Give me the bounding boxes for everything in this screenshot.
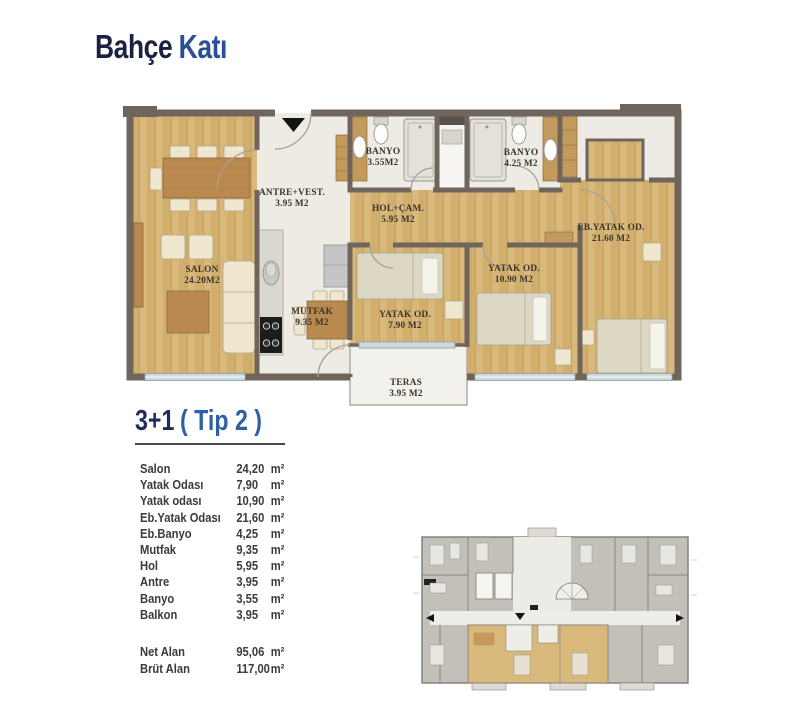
table-row: Yatak Odası7,90m² [140, 477, 290, 493]
svg-text:YATAK OD.: YATAK OD. [488, 264, 540, 274]
row-value: 9,35 [236, 542, 270, 558]
table-row: Mutfak9,35m² [140, 542, 290, 558]
row-unit: m² [271, 477, 290, 493]
table-row: Antre3,95m² [140, 574, 290, 590]
floor-plan-svg: SALON 24.20M2 ANTRE+VEST. 3.95 M2 BANYO … [115, 95, 690, 410]
row-label: Yatak Odası [140, 477, 236, 493]
row-value: 3,95 [236, 607, 270, 623]
svg-text:5.95 M2: 5.95 M2 [381, 215, 415, 225]
table-row: Eb.Yatak Odası21,60m² [140, 510, 290, 526]
unit-type-heading: 3+1( Tip 2 ) [135, 405, 262, 438]
unit-type-variant: ( Tip 2 ) [180, 405, 262, 437]
svg-text:ANTRE+VEST.: ANTRE+VEST. [259, 188, 325, 198]
svg-text:7.90 M2: 7.90 M2 [388, 321, 422, 331]
row-unit: m² [271, 591, 290, 607]
svg-text:21.60 M2: 21.60 M2 [592, 234, 630, 244]
row-label: Salon [140, 461, 236, 477]
svg-text:EB.YATAK OD.: EB.YATAK OD. [577, 223, 644, 233]
row-unit: m² [271, 607, 290, 623]
room-label-mutfak: MUTFAK 9.35 M2 [291, 307, 333, 328]
row-unit: m² [271, 558, 290, 574]
total-value: 117,00 [236, 661, 270, 678]
svg-text:BANYO: BANYO [504, 148, 539, 158]
row-value: 21,60 [236, 510, 270, 526]
total-unit: m² [271, 644, 290, 661]
room-label-bedroom-2: YATAK OD. 10.90 M2 [488, 264, 540, 285]
page-title-secondary: Katı [179, 28, 227, 65]
svg-text:24.20M2: 24.20M2 [184, 276, 220, 286]
row-unit: m² [271, 461, 290, 477]
unit-type-label: 3+1 [135, 405, 174, 437]
svg-text:3.55M2: 3.55M2 [368, 158, 399, 168]
svg-text:BANYO: BANYO [366, 147, 401, 157]
row-value: 3,95 [236, 574, 270, 590]
table-row: Yatak odası10,90m² [140, 493, 290, 509]
row-unit: m² [271, 526, 290, 542]
total-row: Brüt Alan117,00m² [140, 661, 290, 678]
totals-table: Net Alan95,06m² Brüt Alan117,00m² [140, 644, 290, 678]
row-value: 7,90 [236, 477, 270, 493]
highlighted-unit [468, 625, 608, 683]
svg-text:3.95 M2: 3.95 M2 [389, 389, 423, 399]
row-unit: m² [271, 510, 290, 526]
svg-text:YATAK OD.: YATAK OD. [379, 310, 431, 320]
row-label: Yatak odası [140, 493, 236, 509]
row-label: Mutfak [140, 542, 236, 558]
row-unit: m² [271, 542, 290, 558]
row-unit: m² [271, 574, 290, 590]
row-label: Balkon [140, 607, 236, 623]
total-label: Brüt Alan [140, 661, 236, 678]
total-value: 95,06 [236, 644, 270, 661]
row-label: Antre [140, 574, 236, 590]
room-label-teras: TERAS 3.95 M2 [389, 378, 423, 399]
table-row: Eb.Banyo4,25m² [140, 526, 290, 542]
svg-text:3.95 M2: 3.95 M2 [275, 199, 309, 209]
page: { "page": { "title_primary": "Bahçe", "t… [0, 0, 786, 707]
overview-plan [410, 515, 700, 695]
svg-text:TERAS: TERAS [390, 378, 422, 388]
table-row: Hol5,95m² [140, 558, 290, 574]
svg-text:10.90 M2: 10.90 M2 [495, 275, 533, 285]
table-row: Balkon3,95m² [140, 607, 290, 623]
floor-plan: SALON 24.20M2 ANTRE+VEST. 3.95 M2 BANYO … [115, 95, 690, 410]
svg-text:9.35 M2: 9.35 M2 [295, 318, 329, 328]
svg-text:MUTFAK: MUTFAK [291, 307, 333, 317]
row-value: 10,90 [236, 493, 270, 509]
row-value: 4,25 [236, 526, 270, 542]
total-row: Net Alan95,06m² [140, 644, 290, 661]
antre-furniture [336, 135, 348, 181]
row-label: Eb.Banyo [140, 526, 236, 542]
row-value: 3,55 [236, 591, 270, 607]
table-row: Banyo3,55m² [140, 591, 290, 607]
page-title-primary: Bahçe [95, 28, 172, 65]
total-label: Net Alan [140, 644, 236, 661]
room-label-banyo-1: BANYO 3.55M2 [366, 147, 401, 168]
table-row: Salon24,20m² [140, 461, 290, 477]
row-unit: m² [271, 493, 290, 509]
overview-plan-svg [410, 515, 700, 695]
room-label-banyo-2: BANYO 4.25 M2 [504, 148, 539, 169]
svg-text:HOL+ÇAM.: HOL+ÇAM. [372, 204, 424, 214]
row-value: 24,20 [236, 461, 270, 477]
row-label: Hol [140, 558, 236, 574]
svg-text:SALON: SALON [185, 265, 218, 275]
row-value: 5,95 [236, 558, 270, 574]
area-table: Salon24,20m² Yatak Odası7,90m² Yatak oda… [140, 461, 290, 623]
row-label: Banyo [140, 591, 236, 607]
total-unit: m² [271, 661, 290, 678]
room-label-salon: SALON 24.20M2 [184, 265, 220, 286]
heading-divider [135, 443, 285, 445]
svg-text:4.25 M2: 4.25 M2 [504, 159, 538, 169]
page-title: BahçeKatı [95, 28, 227, 66]
row-label: Eb.Yatak Odası [140, 510, 236, 526]
